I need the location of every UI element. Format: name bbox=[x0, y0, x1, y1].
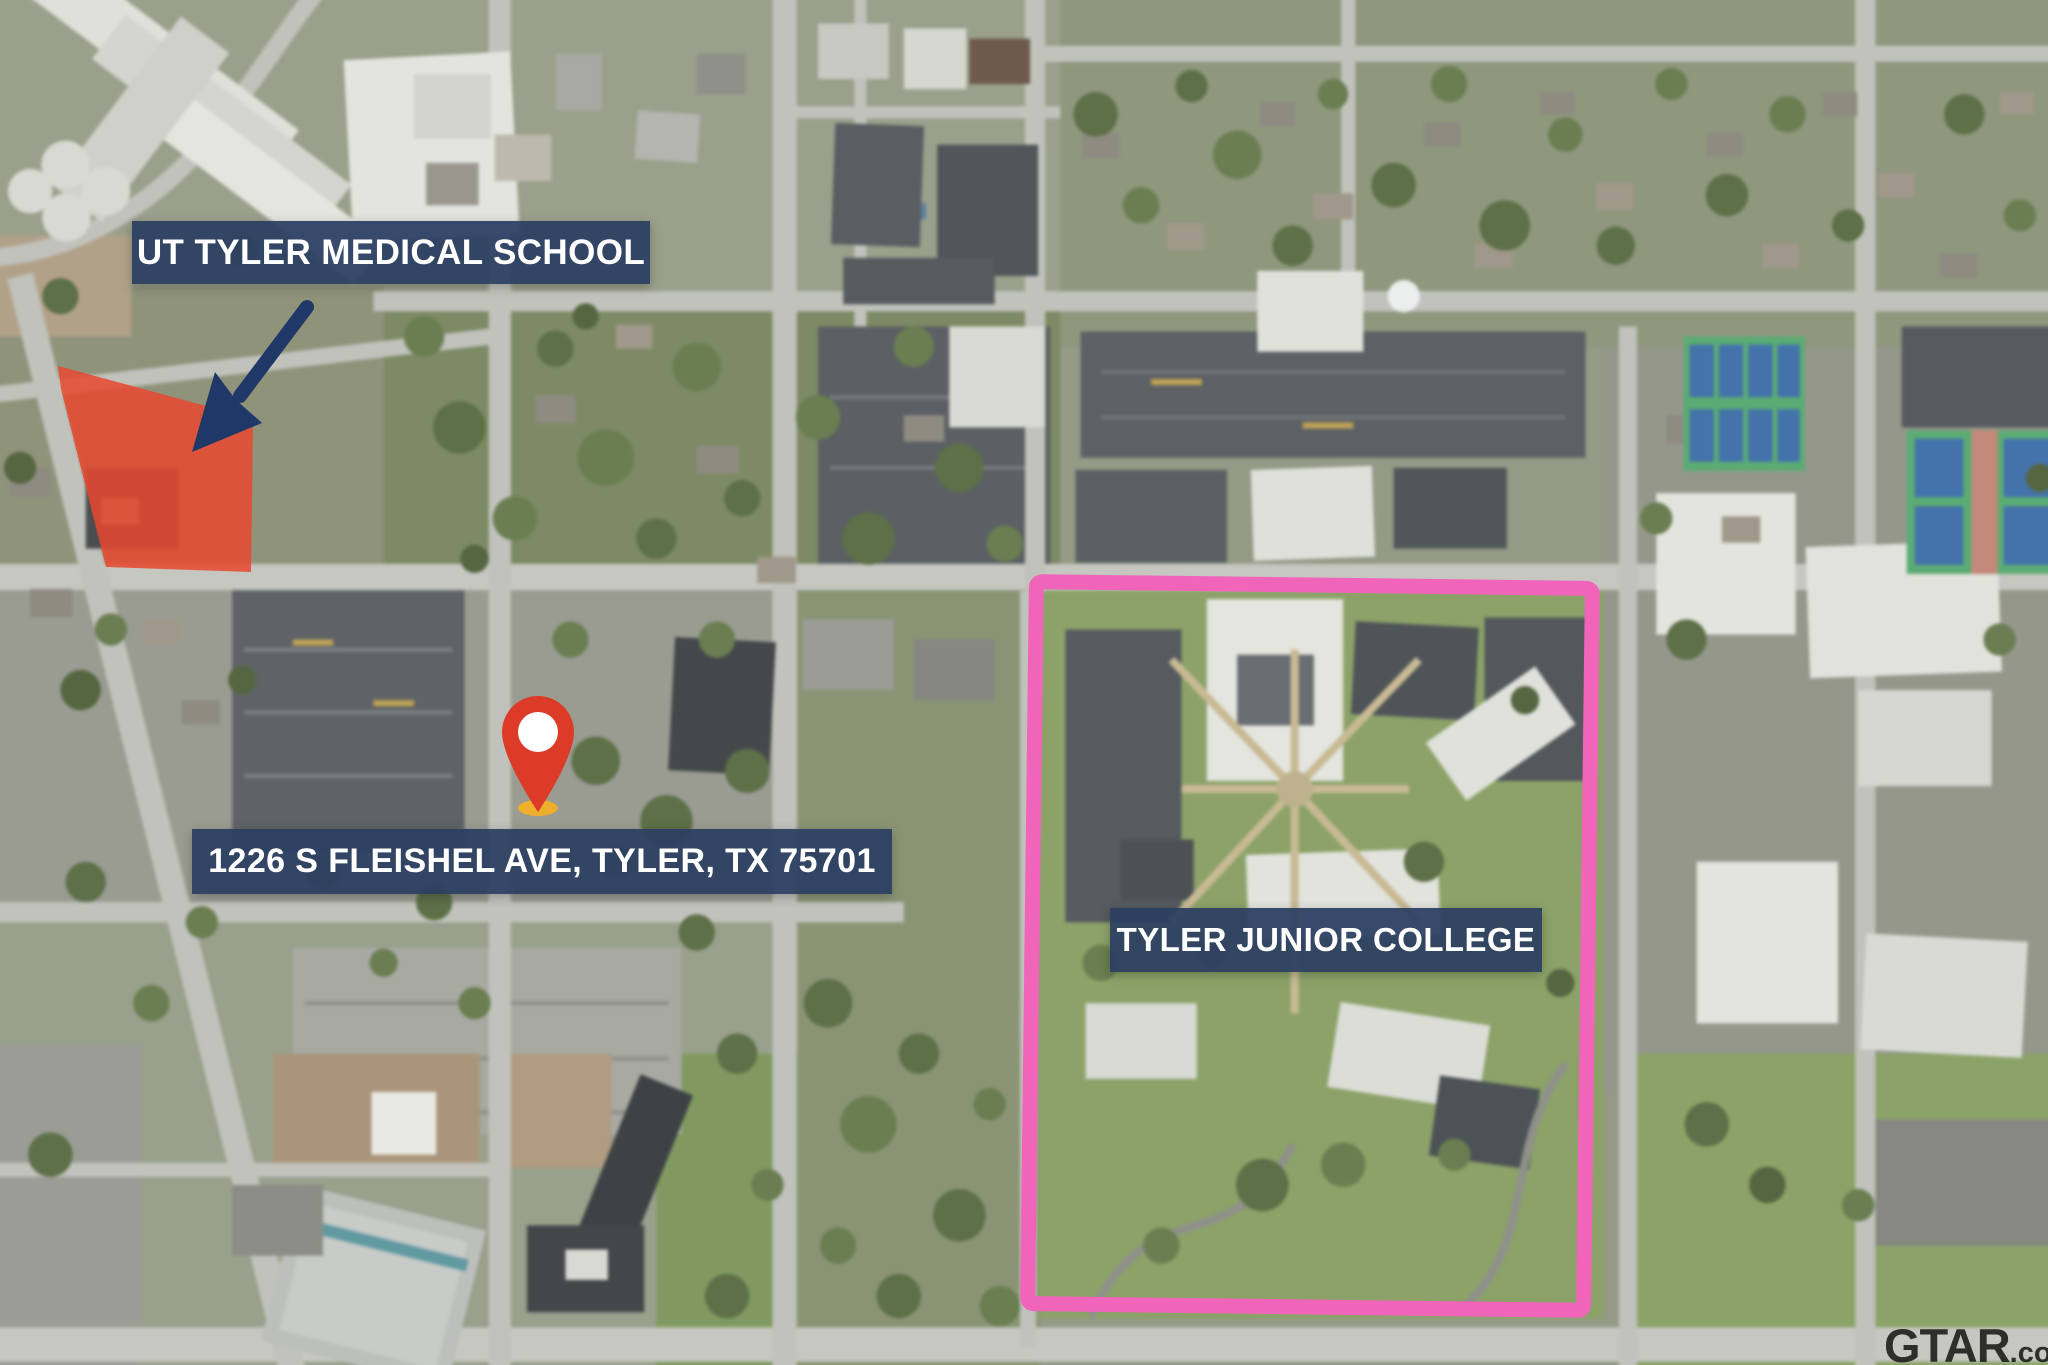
watermark: GTAR.com bbox=[1884, 1318, 2048, 1365]
satellite-map bbox=[0, 0, 2048, 1365]
college-label: TYLER JUNIOR COLLEGE bbox=[1110, 908, 1542, 972]
property-address-label: 1226 S FLEISHEL AVE, TYLER, TX 75701 bbox=[192, 829, 892, 894]
watermark-suffix: .com bbox=[2010, 1337, 2048, 1365]
watermark-brand: GTAR bbox=[1884, 1318, 2010, 1365]
medical-school-label: UT TYLER MEDICAL SCHOOL bbox=[132, 221, 650, 284]
listing-map-graphic: UT TYLER MEDICAL SCHOOL 1226 S FLEISHEL … bbox=[0, 0, 2048, 1365]
aerial-map-svg bbox=[0, 0, 2048, 1365]
